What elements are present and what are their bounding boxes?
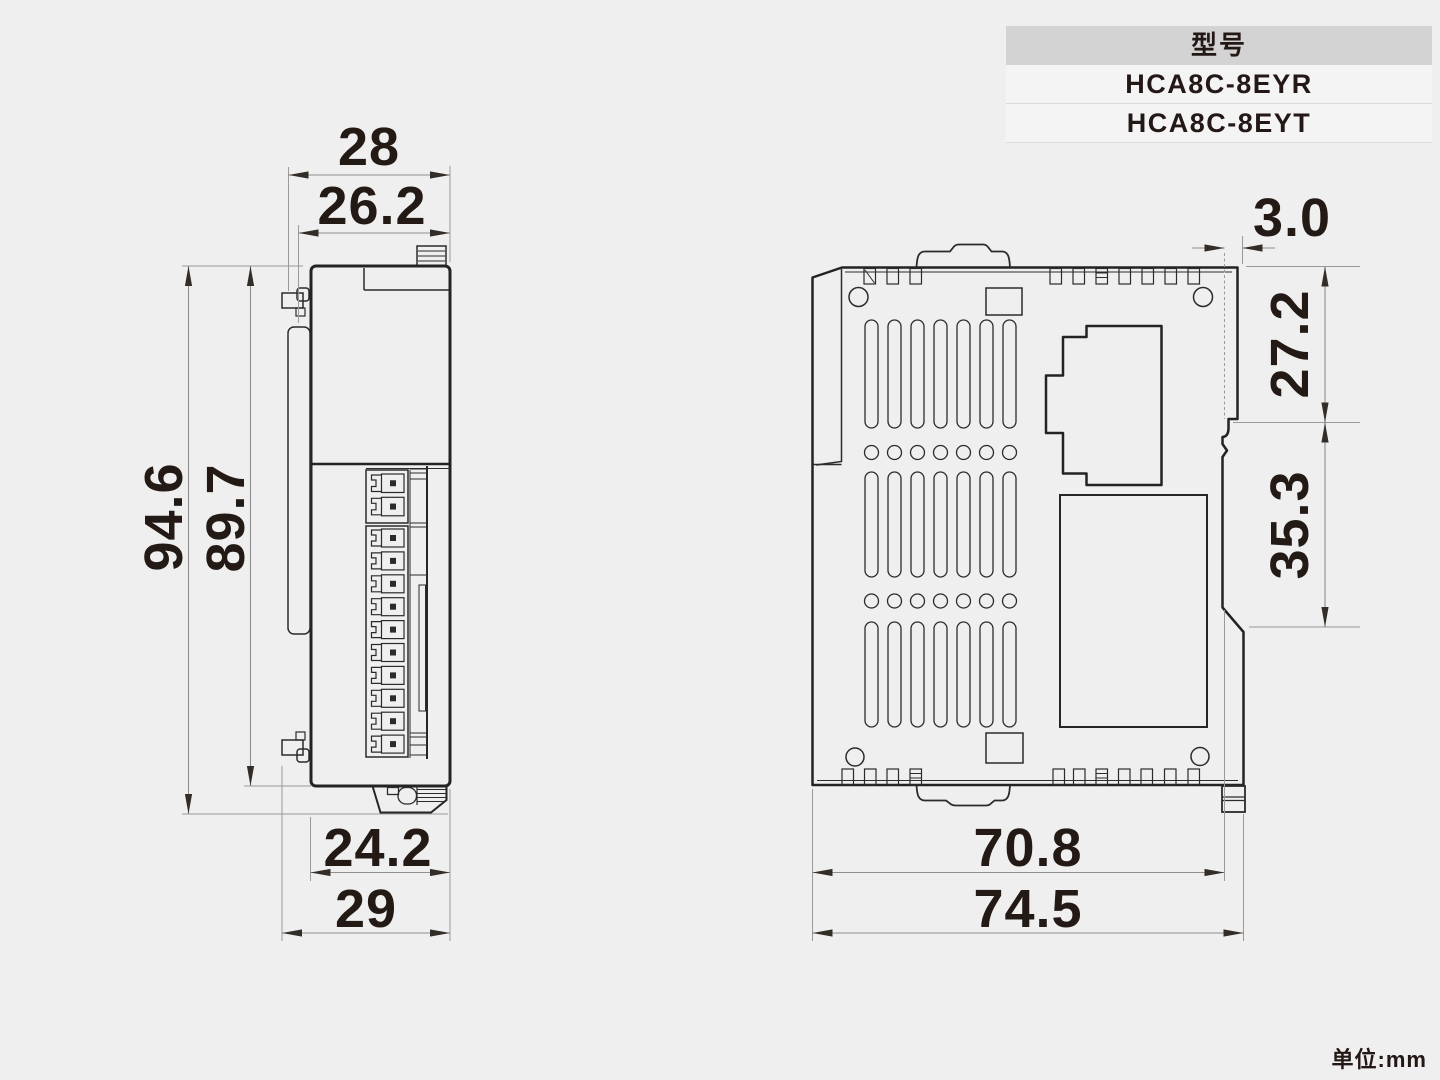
front-view-drawing [282,246,450,813]
mount-teeth [842,269,1200,786]
expansion-connector [1046,326,1162,485]
mount-tooth [842,769,854,785]
terminal-pin [390,741,396,747]
dimension-drawing: 28 26.2 94.6 89.7 24.2 29 70.8 74.5 3.0 … [0,0,1440,1080]
vent-hole [957,594,971,608]
vent-hole [1003,594,1017,608]
side-flange [288,327,310,634]
dim-label-26.2: 26.2 [317,176,426,236]
dim-label-3.0: 3.0 [1253,188,1331,248]
vent-slot [957,622,970,727]
terminal-block-cells [372,474,405,753]
terminal-pin [390,604,396,610]
vent-slot [980,622,993,727]
tooth-rib [1096,273,1108,278]
mount-tooth [1188,269,1200,285]
vent-slot [1003,622,1016,727]
vent-hole [865,594,879,608]
dim-label-89.7: 89.7 [196,463,256,572]
datasheet-page: 28 26.2 94.6 89.7 24.2 29 70.8 74.5 3.0 … [0,0,1440,1080]
vent-slot [934,472,947,577]
vent-slot [980,472,993,577]
terminal-clamp [372,553,382,569]
terminal-clamp [372,667,382,683]
vent-slot [888,622,901,727]
screw-hole [849,288,868,307]
terminal-clamp [372,713,382,729]
top-band [364,268,450,290]
dimension-annotations: 28 26.2 94.6 89.7 24.2 29 70.8 74.5 3.0 … [134,117,1360,941]
mount-tooth [1119,269,1131,285]
mount-tooth [1165,769,1177,785]
mount-tooth [887,269,899,285]
din-clip-bottom [917,785,1011,806]
vent-slot [911,622,924,727]
vent-slot [865,320,878,428]
terminal-pin [390,718,396,724]
vent-slot [865,622,878,727]
terminal-pin [390,695,396,701]
cover-strip [410,466,427,759]
terminal-pin [390,504,396,510]
vent-slot [934,622,947,727]
mount-tooth [1050,269,1062,285]
vent-hole [957,446,971,460]
terminal-pin [390,480,396,486]
mount-tooth [910,269,922,285]
mount-tooth [1074,769,1086,785]
terminal-pin [390,672,396,678]
mount-tooth [910,769,922,785]
terminal-clamp [372,645,382,661]
terminal-clamp [372,475,382,492]
mount-tooth [1119,769,1131,785]
vent-slot [911,320,924,428]
dim-label-24.2: 24.2 [323,818,432,878]
lower-hook [282,732,309,762]
model-table-header: 型号 [1006,26,1432,65]
screw-hole [1191,748,1209,766]
mount-tooth [1142,269,1154,285]
screw-hole [1194,288,1213,307]
mount-tooth [865,769,877,785]
model-row: HCA8C-8EYT [1006,104,1432,143]
latch-foot [1222,786,1245,812]
terminal-pin [390,627,396,633]
dim-label-28: 28 [338,117,400,177]
vent-hole [888,446,902,460]
dim-label-74.5: 74.5 [973,879,1082,939]
terminal-clamp [372,576,382,592]
terminal-pin [390,581,396,587]
dim-label-70.8: 70.8 [973,818,1082,878]
upper-hook [282,288,309,316]
mount-tooth [1073,269,1085,285]
vent-slot [865,472,878,577]
vent-slot [957,472,970,577]
top-window [986,288,1022,315]
mount-tooth [1053,769,1065,785]
vent-slot [1003,320,1016,428]
terminal-clamp [372,599,382,615]
terminal-block-lower [366,526,408,757]
mount-tooth [1188,769,1200,785]
vent-slot [1003,472,1016,577]
tooth-rib [1096,774,1108,779]
vent-hole [980,446,994,460]
mount-tooth [1096,769,1108,785]
dim-label-29: 29 [335,879,397,939]
mount-tooth [1141,769,1153,785]
case-outline [813,268,1244,786]
dim-label-27.2: 27.2 [1260,289,1320,398]
vent-slot [911,472,924,577]
vent-hole [911,446,925,460]
unit-note: 单位:mm [1127,1042,1427,1074]
mount-tooth [1165,269,1177,285]
dim-label-94.6: 94.6 [134,462,194,571]
screw-hole [846,748,864,766]
side-view-drawing [813,245,1246,813]
vent-hole [865,446,879,460]
terminal-pin [390,650,396,656]
model-row: HCA8C-8EYR [1006,65,1432,104]
vent-hole [911,594,925,608]
din-clip-top [917,245,1011,268]
overlap-flange [816,269,842,465]
mount-tooth [1096,269,1108,285]
bottom-latch [373,786,447,813]
vent-slot [888,320,901,428]
label-area [1060,495,1207,727]
terminal-clamp [372,530,382,546]
terminal-clamp [372,498,382,515]
top-clip [417,246,446,266]
vent-slot [934,320,947,428]
vent-slot [957,320,970,428]
terminal-clamp [372,736,382,752]
terminal-clamp [372,622,382,638]
vent-hole [934,446,948,460]
vent-hole [980,594,994,608]
vent-slot [980,320,993,428]
terminal-pin [390,535,396,541]
terminal-pin [390,558,396,564]
bottom-window [986,733,1023,763]
mount-tooth [887,769,899,785]
tooth-rib [910,774,922,779]
vent-hole [1003,446,1017,460]
model-table: 型号 HCA8C-8EYR HCA8C-8EYT [1006,26,1432,143]
terminal-clamp [372,690,382,706]
dim-label-35.3: 35.3 [1260,470,1320,579]
vent-hole [934,594,948,608]
vent-grid [865,320,1017,727]
vent-slot [888,472,901,577]
vent-hole [888,594,902,608]
